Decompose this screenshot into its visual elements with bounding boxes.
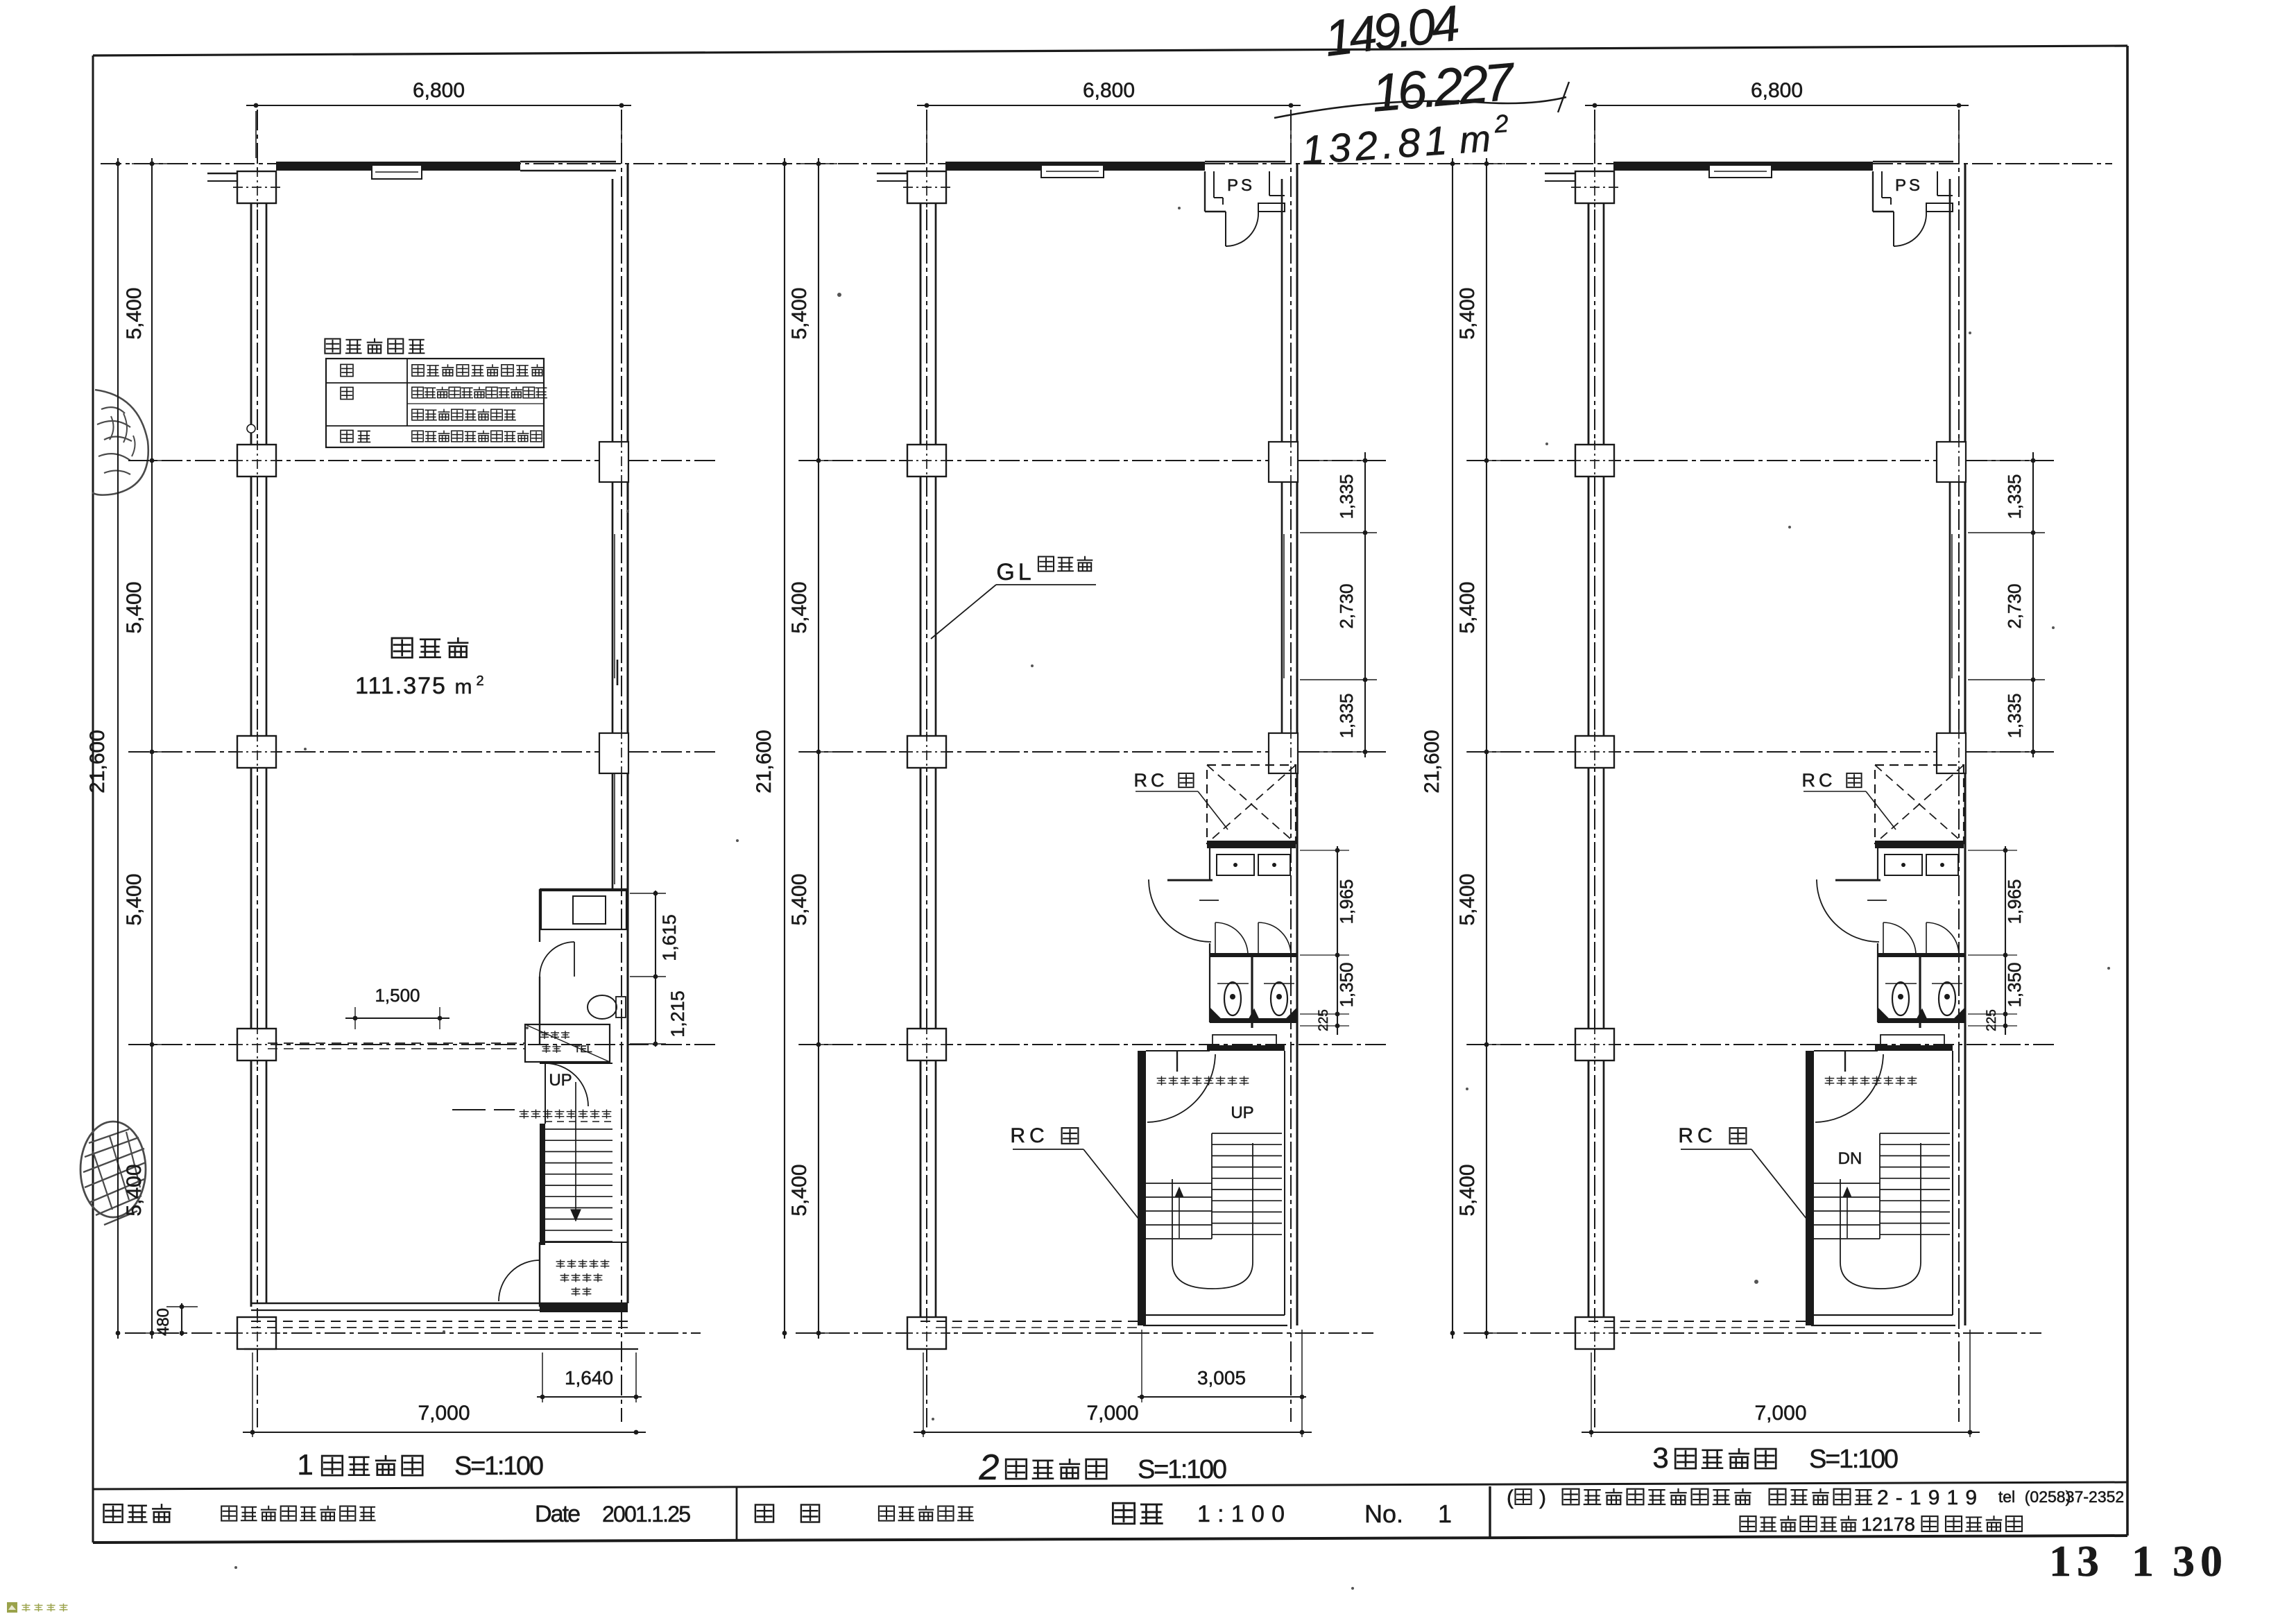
svg-text:21,600: 21,600	[753, 730, 776, 793]
svg-text:(: (	[1507, 1486, 1514, 1509]
svg-text:PS: PS	[1227, 176, 1255, 195]
svg-text:2,730: 2,730	[1336, 583, 1357, 628]
svg-text:(0258): (0258)	[2025, 1488, 2071, 1506]
svg-text:5,400: 5,400	[788, 581, 811, 633]
svg-text:7,000: 7,000	[1086, 1402, 1138, 1425]
svg-text:RC: RC	[1010, 1124, 1048, 1147]
svg-text:3: 3	[1652, 1441, 1668, 1474]
svg-text:RC: RC	[1134, 770, 1168, 791]
svg-text:2001.1.25: 2001.1.25	[602, 1502, 691, 1527]
svg-text:1: 1	[297, 1448, 313, 1481]
svg-text:1,965: 1,965	[1336, 879, 1357, 924]
svg-text:1,215: 1,215	[667, 990, 688, 1038]
svg-text:21,600: 21,600	[86, 730, 109, 793]
svg-text:No.: No.	[1364, 1500, 1403, 1528]
svg-text:GL: GL	[996, 559, 1034, 585]
svg-text:1: 1	[2132, 1536, 2154, 1586]
svg-text:S=1:100: S=1:100	[1809, 1445, 1901, 1474]
svg-text:111.375: 111.375	[355, 673, 447, 699]
svg-text:6,800: 6,800	[1083, 79, 1135, 102]
svg-text:Date: Date	[535, 1501, 581, 1527]
svg-text:tel: tel	[1998, 1488, 2015, 1506]
svg-text:DN: DN	[1838, 1149, 1862, 1168]
svg-text:1,335: 1,335	[1336, 474, 1357, 519]
svg-text:3,005: 3,005	[1197, 1367, 1246, 1389]
svg-text:1:100: 1:100	[1197, 1501, 1285, 1527]
svg-text:1: 1	[1438, 1500, 1452, 1528]
svg-text:5,400: 5,400	[788, 1164, 811, 1216]
svg-text:6,800: 6,800	[413, 79, 465, 102]
svg-text:2: 2	[979, 1448, 1000, 1488]
svg-text:m: m	[1458, 118, 1492, 162]
svg-text:TEL: TEL	[574, 1043, 592, 1054]
svg-text:1,615: 1,615	[659, 914, 680, 961]
svg-text:S=1:100: S=1:100	[1138, 1455, 1230, 1484]
svg-text:1,350: 1,350	[1336, 962, 1357, 1007]
svg-text:225: 225	[1317, 1009, 1331, 1031]
svg-text:UP: UP	[549, 1071, 572, 1090]
svg-text:13: 13	[2049, 1536, 2105, 1586]
svg-text:5,400: 5,400	[788, 287, 811, 339]
svg-text:12178: 12178	[1861, 1513, 1915, 1535]
svg-text:1,335: 1,335	[1336, 693, 1357, 738]
svg-text:): )	[1539, 1486, 1546, 1509]
svg-text:480: 480	[154, 1308, 173, 1336]
svg-text:5,400: 5,400	[123, 287, 146, 339]
svg-text:1,500: 1,500	[375, 985, 420, 1006]
svg-text:7,000: 7,000	[418, 1402, 470, 1425]
svg-text:1,640: 1,640	[565, 1367, 613, 1389]
svg-text:5,400: 5,400	[123, 581, 146, 633]
svg-text:37-2352: 37-2352	[2066, 1488, 2124, 1506]
svg-text:S=1:100: S=1:100	[454, 1452, 547, 1481]
svg-text:2-1919: 2-1919	[1877, 1486, 1981, 1509]
svg-text:UP: UP	[1231, 1104, 1253, 1122]
svg-text:5,400: 5,400	[123, 873, 146, 925]
svg-text:2: 2	[476, 673, 483, 689]
svg-text:30: 30	[2173, 1536, 2228, 1586]
svg-text:5,400: 5,400	[123, 1164, 146, 1216]
svg-text:m: m	[455, 676, 472, 698]
svg-text:2: 2	[1493, 109, 1509, 138]
svg-text:5,400: 5,400	[788, 873, 811, 925]
